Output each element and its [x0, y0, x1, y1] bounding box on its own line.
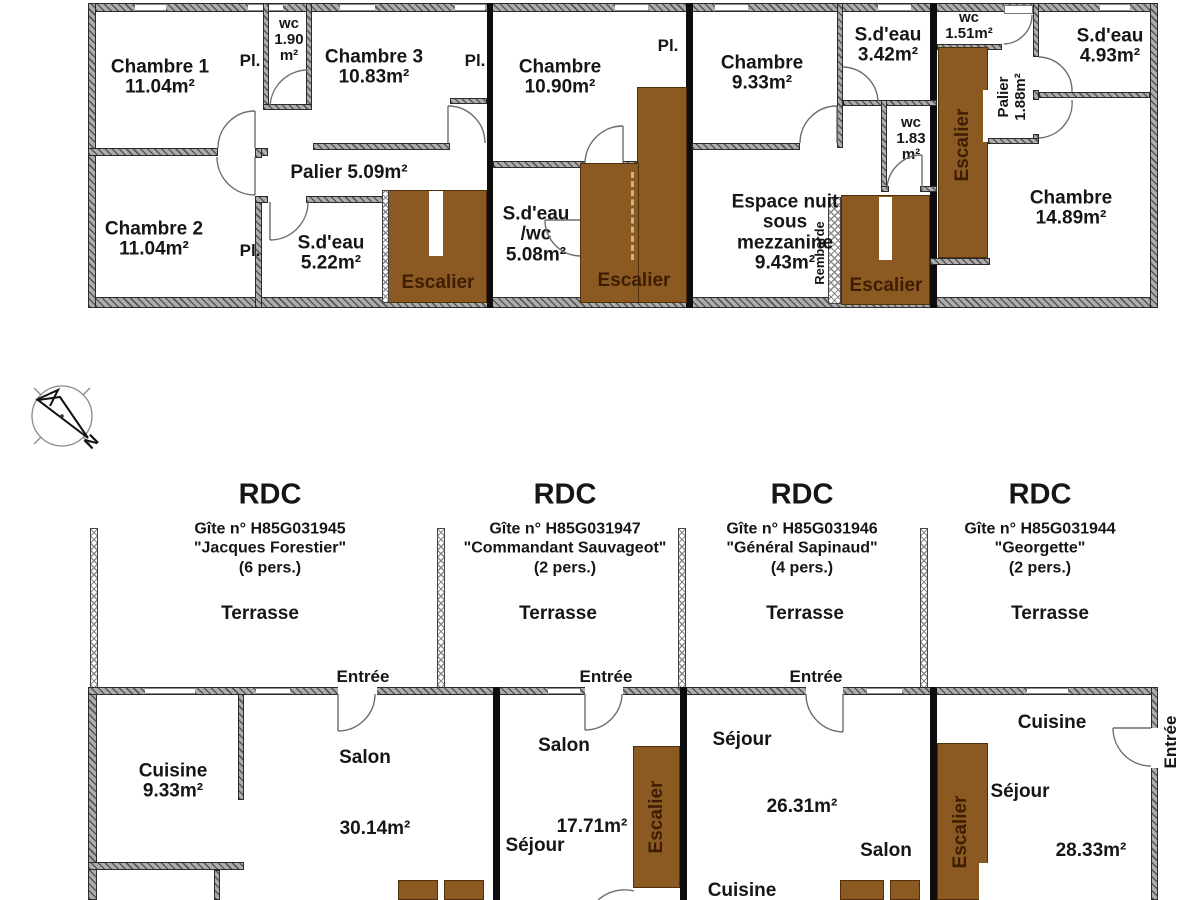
terrace-label: Terrasse	[766, 604, 844, 624]
floor-title: RDC	[1009, 479, 1072, 510]
wall	[930, 258, 990, 265]
door-gap	[338, 687, 377, 695]
gite-name: "Général Sapinaud"	[726, 539, 877, 556]
window	[867, 688, 902, 694]
stair-block	[444, 880, 484, 900]
door-gap	[1151, 728, 1158, 768]
wall	[692, 143, 800, 150]
wall	[88, 148, 218, 156]
stair-slot	[429, 191, 443, 256]
door-arc	[585, 126, 623, 163]
stair-label: Escalier	[951, 796, 971, 869]
door-gap	[585, 687, 623, 695]
gite-capacity: (2 pers.)	[534, 559, 596, 576]
wall	[920, 186, 937, 192]
wall	[881, 186, 889, 192]
room-label-salon: Salon	[860, 841, 912, 861]
door-arc	[1004, 15, 1032, 44]
door-arc	[806, 694, 843, 732]
room-label-chambre2: Chambre 2 11.04m²	[105, 220, 203, 261]
room-label-cuisine: Cuisine	[708, 881, 777, 900]
floor-title: RDC	[771, 479, 834, 510]
stair-slot	[879, 197, 892, 260]
wall	[263, 104, 312, 110]
terrace-label: Terrasse	[1011, 604, 1089, 624]
gite-capacity: (6 pers.)	[239, 559, 301, 576]
wall	[238, 694, 244, 800]
terrace-divider	[920, 528, 928, 694]
door-arc	[843, 67, 878, 103]
wall	[1039, 92, 1150, 98]
door-arc	[1039, 57, 1072, 92]
door-gap	[806, 687, 843, 695]
door-arc	[338, 694, 375, 731]
stair-block	[398, 880, 438, 900]
room-label-cuisine: Cuisine 9.33m²	[139, 762, 208, 803]
room-label-sejour: Séjour	[505, 836, 564, 856]
room-label-salon: Salon	[339, 748, 391, 768]
door-arc	[217, 157, 255, 195]
room-label-wc: wc 1.83 m²	[896, 115, 925, 163]
window	[1027, 688, 1068, 694]
window	[145, 688, 195, 694]
door-arc	[598, 890, 634, 900]
gite-capacity: (2 pers.)	[1009, 559, 1071, 576]
wall	[1151, 687, 1158, 900]
wall	[88, 862, 244, 870]
wall	[493, 161, 585, 168]
stair-block	[840, 880, 884, 900]
floor-title: RDC	[534, 479, 597, 510]
stair-rail	[382, 190, 389, 303]
entrance-label: Entrée	[580, 668, 633, 686]
terrace-divider	[90, 528, 98, 694]
door-arc	[218, 111, 255, 148]
terrace-divider	[437, 528, 445, 694]
stair-label: Escalier	[953, 109, 973, 182]
wall	[1033, 3, 1039, 57]
wall	[837, 3, 843, 148]
compass-north-label: N	[80, 431, 102, 453]
room-label-placard: Pl.	[658, 37, 679, 55]
wall	[255, 148, 262, 158]
door-arc	[1039, 100, 1072, 138]
party-wall	[493, 687, 500, 900]
room-area-label: 28.33m²	[1056, 841, 1127, 861]
gite-number: Gîte n° H85G031945	[194, 520, 345, 537]
stair-slot	[983, 90, 988, 142]
stair-block	[890, 880, 920, 900]
stair-label: Escalier	[598, 271, 671, 291]
room-label-palier: Palier 5.09m²	[290, 163, 407, 183]
window	[135, 4, 166, 11]
window	[548, 688, 580, 694]
gite-name: "Georgette"	[995, 539, 1086, 556]
room-label-palier: Palier	[996, 77, 1012, 118]
room-area-label: 17.71m²	[557, 817, 628, 837]
party-wall	[686, 3, 693, 308]
window	[256, 688, 290, 694]
party-wall	[930, 687, 937, 900]
wall	[263, 3, 269, 110]
party-wall	[680, 687, 687, 900]
gite-number: Gîte n° H85G031944	[964, 520, 1115, 537]
compass-center-dot	[60, 414, 64, 418]
room-label-sdeau: S.d'eau 3.42m²	[855, 26, 922, 67]
room-label-sdeau: S.d'eau 4.93m²	[1077, 27, 1144, 68]
stair-slot	[979, 863, 988, 900]
room-area-label: 26.31m²	[767, 797, 838, 817]
room-label-placard: Pl.	[465, 52, 486, 70]
wall	[881, 100, 887, 190]
room-label-sdeau: S.d'eau 5.22m²	[298, 234, 365, 275]
room-label-palier-area: 1.88m²	[1013, 73, 1029, 121]
entrance-label: Entrée	[790, 668, 843, 686]
wall	[450, 98, 487, 104]
party-wall	[487, 3, 493, 308]
window	[715, 4, 748, 11]
terrace-label: Terrasse	[221, 604, 299, 624]
wall	[843, 100, 937, 106]
room-label-placard: Pl.	[240, 242, 261, 260]
wall	[88, 687, 1158, 695]
wall	[1150, 3, 1158, 308]
room-label-sejour: Séjour	[712, 730, 771, 750]
gite-name: "Jacques Forestier"	[194, 539, 346, 556]
room-label-chambre: Chambre 10.90m²	[519, 58, 601, 99]
window	[1100, 4, 1130, 11]
wall	[306, 196, 390, 203]
wall	[306, 3, 312, 110]
room-label-placard: Pl.	[240, 52, 261, 70]
wall	[313, 143, 450, 150]
wall	[988, 138, 1039, 144]
room-label-wc: wc 1.90 m²	[274, 16, 303, 64]
stair-label: Escalier	[402, 273, 475, 293]
stair-label: Escalier	[850, 276, 923, 296]
room-label-chambre3: Chambre 3 10.83m²	[325, 48, 423, 89]
room-label-chambre: Chambre 14.89m²	[1030, 189, 1112, 230]
door-arc	[800, 106, 837, 143]
entrance-label: Entrée	[1162, 716, 1180, 769]
gite-number: Gîte n° H85G031947	[489, 520, 640, 537]
door-arc	[270, 70, 308, 108]
floor-plan-canvas: Chambre 1 11.04m² Pl. wc 1.90 m² Chambre…	[0, 0, 1200, 900]
room-label-wc: wc 1.51m²	[945, 10, 993, 42]
gite-capacity: (4 pers.)	[771, 559, 833, 576]
floor-title: RDC	[239, 479, 302, 510]
room-label-chambre1: Chambre 1 11.04m²	[111, 58, 209, 99]
window	[615, 4, 648, 11]
room-area-label: 30.14m²	[340, 819, 411, 839]
gite-name: "Commandant Sauvageot"	[464, 539, 667, 556]
window	[455, 4, 485, 11]
room-label-chambre: Chambre 9.33m²	[721, 54, 803, 95]
entrance-label: Entrée	[337, 668, 390, 686]
window	[340, 4, 375, 11]
door-arc	[1113, 728, 1151, 766]
rembarde-label: Rembarde	[813, 221, 827, 285]
door-arc	[585, 694, 622, 730]
room-label-sdeau-wc: S.d'eau /wc 5.08m²	[503, 205, 570, 266]
room-label-cuisine: Cuisine	[1018, 713, 1087, 733]
stair-dash	[631, 172, 634, 260]
wall	[214, 870, 220, 900]
terrace-divider	[678, 528, 686, 694]
door-arc	[448, 106, 485, 143]
window	[878, 4, 911, 11]
room-label-salon: Salon	[538, 736, 590, 756]
door-leaf	[1004, 5, 1033, 14]
room-label-sejour: Séjour	[990, 782, 1049, 802]
terrace-label: Terrasse	[519, 604, 597, 624]
wall	[255, 196, 268, 203]
stair-label: Escalier	[647, 781, 667, 854]
gite-number: Gîte n° H85G031946	[726, 520, 877, 537]
